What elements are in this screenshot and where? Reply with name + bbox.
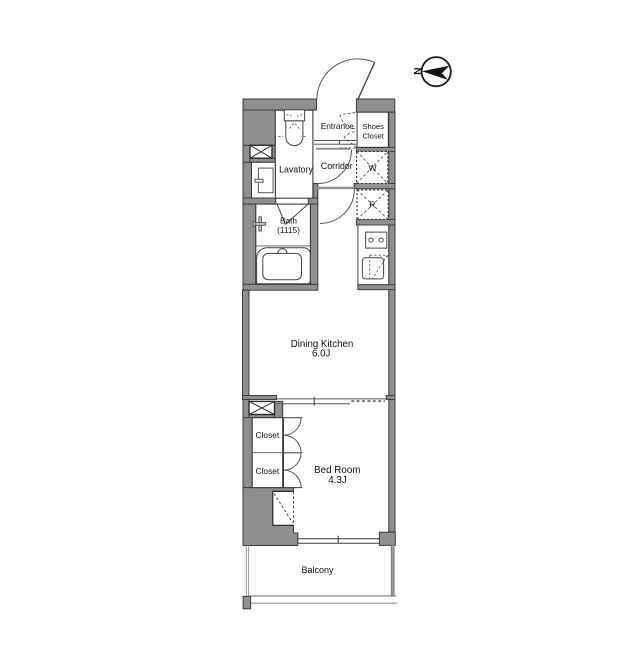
- svg-text:Closet: Closet: [363, 132, 385, 141]
- svg-text:Shoes: Shoes: [363, 122, 385, 131]
- svg-text:Closet: Closet: [256, 466, 280, 476]
- svg-text:6.0J: 6.0J: [312, 349, 330, 360]
- svg-text:Entrance: Entrance: [321, 121, 355, 131]
- svg-text:Corridor: Corridor: [321, 161, 353, 171]
- svg-text:Lavatory: Lavatory: [279, 164, 313, 174]
- svg-text:Bath: Bath: [280, 215, 297, 225]
- svg-text:Closet: Closet: [256, 430, 280, 440]
- svg-text:Balcony: Balcony: [301, 565, 334, 575]
- svg-text:N: N: [413, 68, 424, 75]
- svg-text:R: R: [369, 200, 375, 210]
- svg-text:4.3J: 4.3J: [328, 475, 347, 486]
- svg-text:W: W: [368, 163, 376, 173]
- svg-text:(1115): (1115): [277, 225, 300, 235]
